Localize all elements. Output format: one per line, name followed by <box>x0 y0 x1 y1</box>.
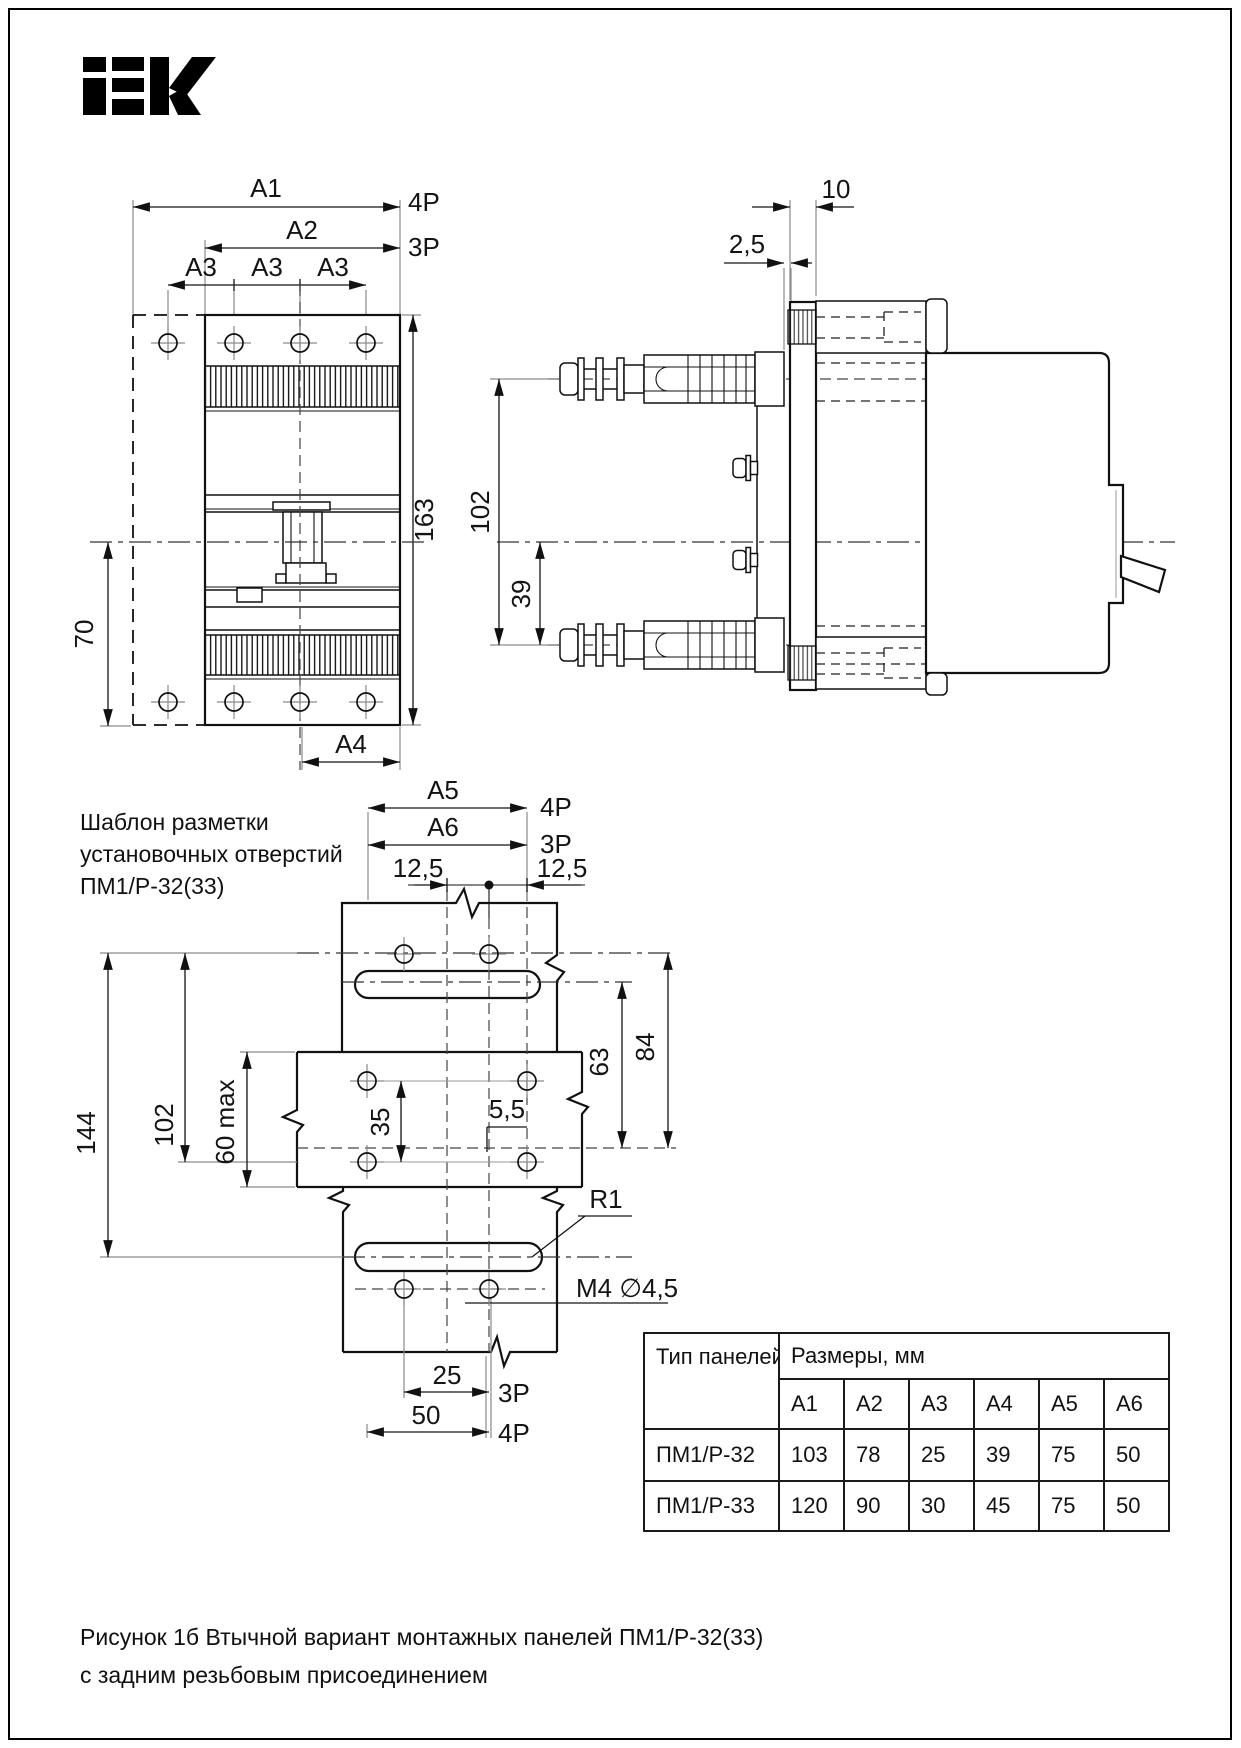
dim-a6-label: A6 <box>427 812 459 842</box>
template-4p-label: 4P <box>540 792 572 822</box>
dim-102t-label: 102 <box>149 1103 179 1146</box>
table-col-a3: А3 <box>909 1379 974 1429</box>
dim-39-label: 39 <box>506 580 536 609</box>
dimensions-table: Тип панелей Размеры, мм А1 А2 А3 А4 А5 А… <box>643 1332 1170 1532</box>
row1-type: ПМ1/Р-32 <box>644 1429 779 1481</box>
iek-logo: IEK <box>83 57 216 115</box>
breaker-handle <box>1121 556 1165 592</box>
dim-12-5-left-label: 12,5 <box>393 853 444 883</box>
template-title-line1: Шаблон разметки <box>80 806 343 838</box>
row2-a4: 45 <box>974 1481 1039 1531</box>
upper-stud <box>560 352 784 406</box>
template-title: Шаблон разметки установочных отверстий П… <box>80 806 343 902</box>
reference-point-dot <box>485 881 494 890</box>
row2-a2: 90 <box>844 1481 909 1531</box>
template-title-line2: установочных отверстий <box>80 838 343 870</box>
row1-a4: 39 <box>974 1429 1039 1481</box>
lower-stud <box>560 618 784 672</box>
dim-10-label: 10 <box>822 174 851 204</box>
row2-a3: 30 <box>909 1481 974 1531</box>
row2-a6: 50 <box>1104 1481 1169 1531</box>
dim-70-label: 70 <box>69 620 99 649</box>
dim-102-label: 102 <box>465 490 495 533</box>
table-col-a5: А5 <box>1039 1379 1104 1429</box>
dim-a3-label-3: A3 <box>317 252 349 282</box>
row1-a2: 78 <box>844 1429 909 1481</box>
table-header-type: Тип панелей <box>644 1333 779 1429</box>
dim-a5-label: A5 <box>427 775 459 805</box>
dim-a2-label: A2 <box>286 215 318 245</box>
table-row: ПМ1/Р-32 103 78 25 39 75 50 <box>644 1429 1169 1481</box>
row2-type: ПМ1/Р-33 <box>644 1481 779 1531</box>
row1-a3: 25 <box>909 1429 974 1481</box>
dim-a3-label-1: A3 <box>185 252 217 282</box>
pole-4p-label: 4P <box>408 187 440 217</box>
dim-2-5-label: 2,5 <box>729 229 765 259</box>
front-view: A1 A2 A3 A3 A3 4P 3P 163 70 A4 <box>69 173 440 770</box>
table-col-a4: А4 <box>974 1379 1039 1429</box>
table-header-sizes: Размеры, мм <box>779 1333 1169 1379</box>
dim-60max-label: 60 max <box>210 1079 240 1164</box>
dim-144-label: 144 <box>71 1111 101 1154</box>
page: IEK <box>0 0 1241 1748</box>
side-view: 10 2,5 102 39 <box>465 174 1175 695</box>
row2-a1: 120 <box>779 1481 844 1531</box>
table-col-a1: А1 <box>779 1379 844 1429</box>
dim-a3-label-2: A3 <box>251 252 283 282</box>
dim-163-label: 163 <box>409 498 439 541</box>
dim-35-label: 35 <box>365 1108 395 1137</box>
table-row: ПМ1/Р-33 120 90 30 45 75 50 <box>644 1481 1169 1531</box>
dim-12-5-right-label: 12,5 <box>537 853 588 883</box>
figure-caption-line1: Рисунок 1б Втычной вариант монтажных пан… <box>80 1618 763 1656</box>
row2-a5: 75 <box>1039 1481 1104 1531</box>
row1-a1: 103 <box>779 1429 844 1481</box>
row1-a6: 50 <box>1104 1429 1169 1481</box>
dim-84-label: 84 <box>630 1033 660 1062</box>
dim-25-label: 25 <box>433 1360 462 1390</box>
dim-a1-label: A1 <box>250 173 282 203</box>
table-col-a2: А2 <box>844 1379 909 1429</box>
dim-5-5-label: 5,5 <box>489 1094 525 1124</box>
dim-a4-label: A4 <box>335 729 367 759</box>
pole-3p-label: 3P <box>408 232 440 262</box>
thread-m4-label: M4 ∅4,5 <box>576 1273 678 1303</box>
dim-63-label: 63 <box>584 1048 614 1077</box>
figure-caption: Рисунок 1б Втычной вариант монтажных пан… <box>80 1618 763 1694</box>
radius-r1-label: R1 <box>589 1184 622 1214</box>
bottom-3p-label: 3P <box>498 1378 530 1408</box>
table-col-a6: А6 <box>1104 1379 1169 1429</box>
row1-a5: 75 <box>1039 1429 1104 1481</box>
dim-50-label: 50 <box>412 1400 441 1430</box>
figure-caption-line2: с задним резьбовым присоединением <box>80 1656 763 1694</box>
template-title-line3: ПМ1/Р-32(33) <box>80 870 343 902</box>
bottom-4p-label: 4P <box>498 1418 530 1448</box>
